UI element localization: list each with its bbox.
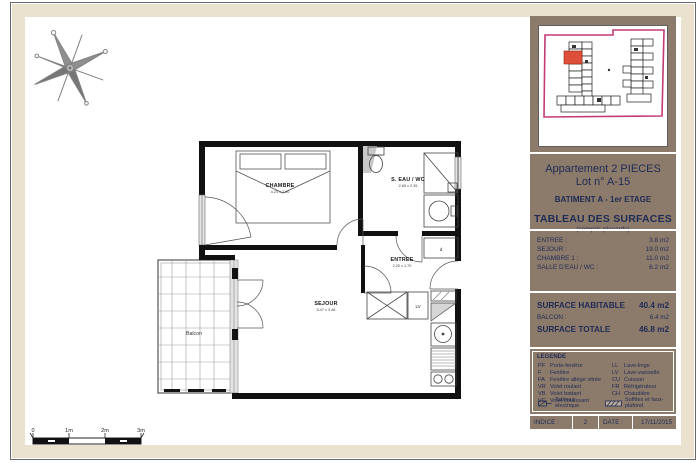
shower [424, 153, 458, 193]
floor-plan: CHAMBRE 4.20 x 2.60 S. EAU / WC 2.65 x 2… [148, 133, 478, 413]
table-row: ENTREE : 3.8 m2 [537, 236, 669, 245]
compass-rose-icon [28, 26, 112, 110]
legend-abbr: CU [612, 377, 624, 384]
date-label: DATE : [598, 416, 632, 429]
room-label-seau: S. EAU / WC [391, 177, 425, 183]
legend-title: LEGENDE [537, 354, 566, 360]
label-d: d [440, 247, 443, 252]
room-label: ENTREE : [537, 236, 567, 245]
room-value: 19.0 m2 [646, 245, 670, 254]
legend-icons-row: Tableau électrique Soffites et faux-plaf… [538, 397, 670, 409]
surface-habitable-row: SURFACE HABITABLE 40.4 m2 [537, 300, 669, 311]
surface-totale-row: SURFACE TOTALE 46.8 m2 [537, 324, 669, 335]
balcon-label: BALCON : [537, 313, 566, 322]
legend-label: Volet roulant [550, 384, 581, 391]
room-value: 11.0 m2 [646, 254, 669, 263]
table-row: SEJOUR : 19.0 m2 [537, 245, 669, 254]
room-label-chambre: CHAMBRE [266, 183, 295, 189]
room-label-balcon: Balcon [186, 331, 202, 337]
room-label: SEJOUR : [537, 245, 567, 254]
soffites-hatch-icon [605, 400, 622, 407]
legend-box: LEGENDE PFPorte-fenêtre FFenêtre FAFenêt… [532, 351, 674, 412]
room-dims-chambre: 4.20 x 2.60 [271, 190, 290, 194]
surface-totale-label: SURFACE TOTALE [537, 324, 610, 335]
legend-label: Réfrigérateur [624, 384, 657, 391]
balcon-row: BALCON : 6.4 m2 [537, 313, 669, 322]
room-label: SALLE D'EAU / WC : [537, 263, 598, 272]
kitchen-column [431, 291, 456, 386]
balcony [159, 261, 231, 392]
room-value: 6.2 m2 [649, 263, 669, 272]
site-plan-thumbnail [538, 25, 668, 147]
washbasin [424, 195, 458, 227]
legend-abbr: F [538, 370, 550, 377]
surface-totale-value: 46.8 m2 [639, 324, 669, 335]
legend-label: Lave-vaisselle [624, 370, 659, 377]
legend-label: Lave-linge [624, 363, 650, 370]
blueprint-page: CHAMBRE 4.20 x 2.60 S. EAU / WC 2.65 x 2… [0, 0, 700, 463]
soffites-label: Soffites et faux-plafond [625, 397, 670, 409]
indice-date-bar: INDICE : 2 DATE : 17/11/2015 [530, 414, 676, 429]
highlighted-unit [564, 51, 582, 64]
apartment-header: Appartement 2 PIECES Lot n° A-15 BATIMEN… [530, 152, 676, 229]
legend-abbr: LL [612, 363, 624, 370]
legend-abbr: VR [538, 384, 550, 391]
legend-label: Porte-fenêtre [550, 363, 583, 370]
room-label-sejour: SEJOUR [314, 301, 337, 307]
legend-label: Cuisson [624, 377, 644, 384]
legend-label: Fenêtre [550, 370, 569, 377]
table-row: CHAMBRE 1 : 11.0 m2 [537, 254, 669, 263]
room-dims-entree: 2.20 x 1.70 [393, 264, 412, 268]
legend-label: Fenêtre allège vitrée [550, 377, 601, 384]
legend-abbr: LV [612, 370, 624, 377]
room-label: CHAMBRE 1 : [537, 254, 579, 263]
soffite-shading [363, 146, 377, 173]
room-dims-seau: 2.65 x 2.35 [399, 184, 418, 188]
label-lv: LV [415, 304, 420, 309]
room-dims-sejour: 5.47 x 3.48 [317, 308, 336, 312]
surface-habitable-value: 40.4 m2 [639, 300, 669, 311]
legend-abbr: FA [538, 377, 550, 384]
date-value: 17/11/2015 [632, 416, 676, 429]
legend-right-column: LLLave-linge LVLave-vaisselle CUCuisson … [612, 363, 674, 398]
room-value: 3.8 m2 [649, 236, 669, 245]
indice-label: INDICE : [530, 416, 572, 429]
balcon-value: 6.4 m2 [650, 313, 669, 322]
legend-section: LEGENDE PFPorte-fenêtre FFenêtre FAFenêt… [530, 347, 676, 414]
surfaces-table-title: TABLEAU DES SURFACES [530, 213, 676, 225]
site-plan-section [530, 16, 676, 152]
apartment-title: Appartement 2 PIECES [530, 163, 676, 176]
info-sidebar: Appartement 2 PIECES Lot n° A-15 BATIMEN… [530, 16, 676, 429]
scale-bar: 0 1m 2m 3m [28, 425, 148, 449]
indice-value: 2 [572, 416, 598, 429]
electrical-panel-icon [538, 400, 552, 407]
legend-abbr: FR [612, 384, 624, 391]
lot-number: Lot n° A-15 [530, 176, 676, 189]
surface-totals: SURFACE HABITABLE 40.4 m2 BALCON : 6.4 m… [530, 291, 676, 347]
site-plan-drawing [539, 26, 667, 146]
building-floor: BATIMENT A - 1er ETAGE [530, 195, 676, 204]
legend-abbr: PF [538, 363, 550, 370]
room-label-entree: ENTREE [390, 257, 413, 263]
table-row: SALLE D'EAU / WC : 6.2 m2 [537, 263, 669, 272]
electrical-panel-label: Tableau électrique [555, 397, 591, 409]
surface-habitable-label: SURFACE HABITABLE [537, 300, 625, 311]
surfaces-table: ENTREE : 3.8 m2 SEJOUR : 19.0 m2 CHAMBRE… [530, 229, 676, 291]
